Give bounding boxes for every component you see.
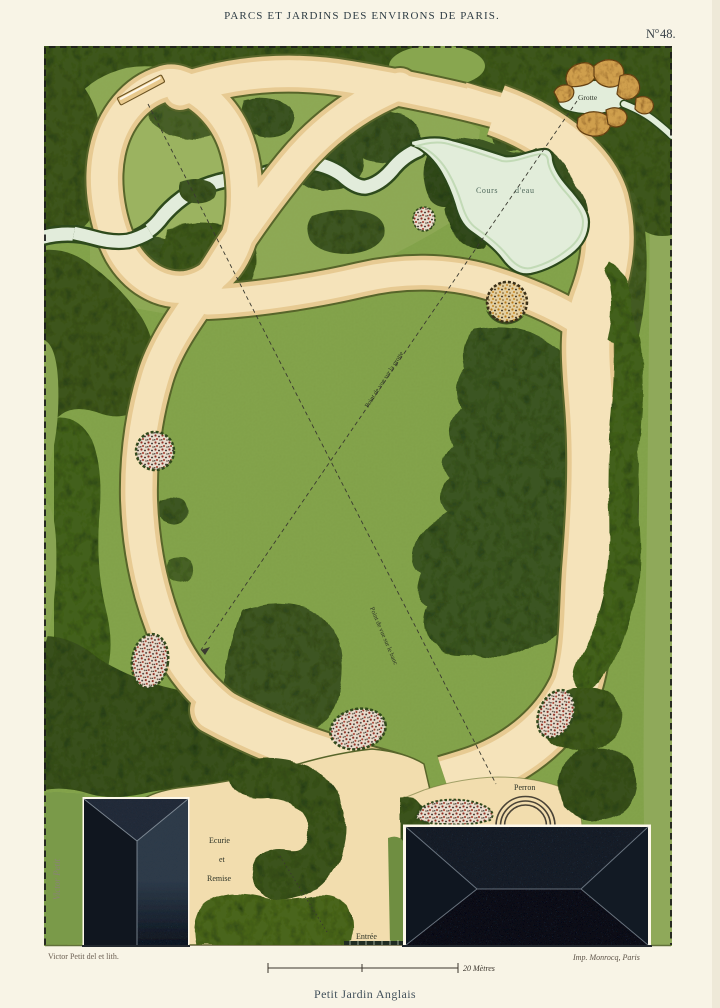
svg-text:Remise: Remise bbox=[207, 874, 231, 883]
svg-text:Ecurie: Ecurie bbox=[209, 836, 230, 845]
svg-text:Victor Petit: Victor Petit bbox=[52, 858, 62, 900]
svg-text:Grotte: Grotte bbox=[578, 93, 598, 102]
svg-text:48.: 48. bbox=[660, 27, 676, 41]
svg-text:Cours: Cours bbox=[476, 186, 498, 195]
svg-text:Entrée: Entrée bbox=[356, 932, 377, 941]
svg-text:Petit Jardin Anglais: Petit Jardin Anglais bbox=[314, 987, 416, 1001]
svg-text:N: N bbox=[646, 27, 655, 41]
svg-text:Victor Petit del et lith.: Victor Petit del et lith. bbox=[48, 952, 119, 961]
svg-text:o: o bbox=[655, 26, 659, 35]
svg-text:d'eau: d'eau bbox=[515, 186, 535, 195]
svg-text:Perron: Perron bbox=[514, 783, 535, 792]
svg-text:Imp. Monrocq, Paris: Imp. Monrocq, Paris bbox=[572, 953, 640, 962]
svg-text:PARCS ET JARDINS DES ENVIRONS: PARCS ET JARDINS DES ENVIRONS DE PARIS. bbox=[224, 10, 500, 22]
svg-text:et: et bbox=[219, 855, 226, 864]
svg-text:20 Mètres: 20 Mètres bbox=[463, 964, 495, 973]
